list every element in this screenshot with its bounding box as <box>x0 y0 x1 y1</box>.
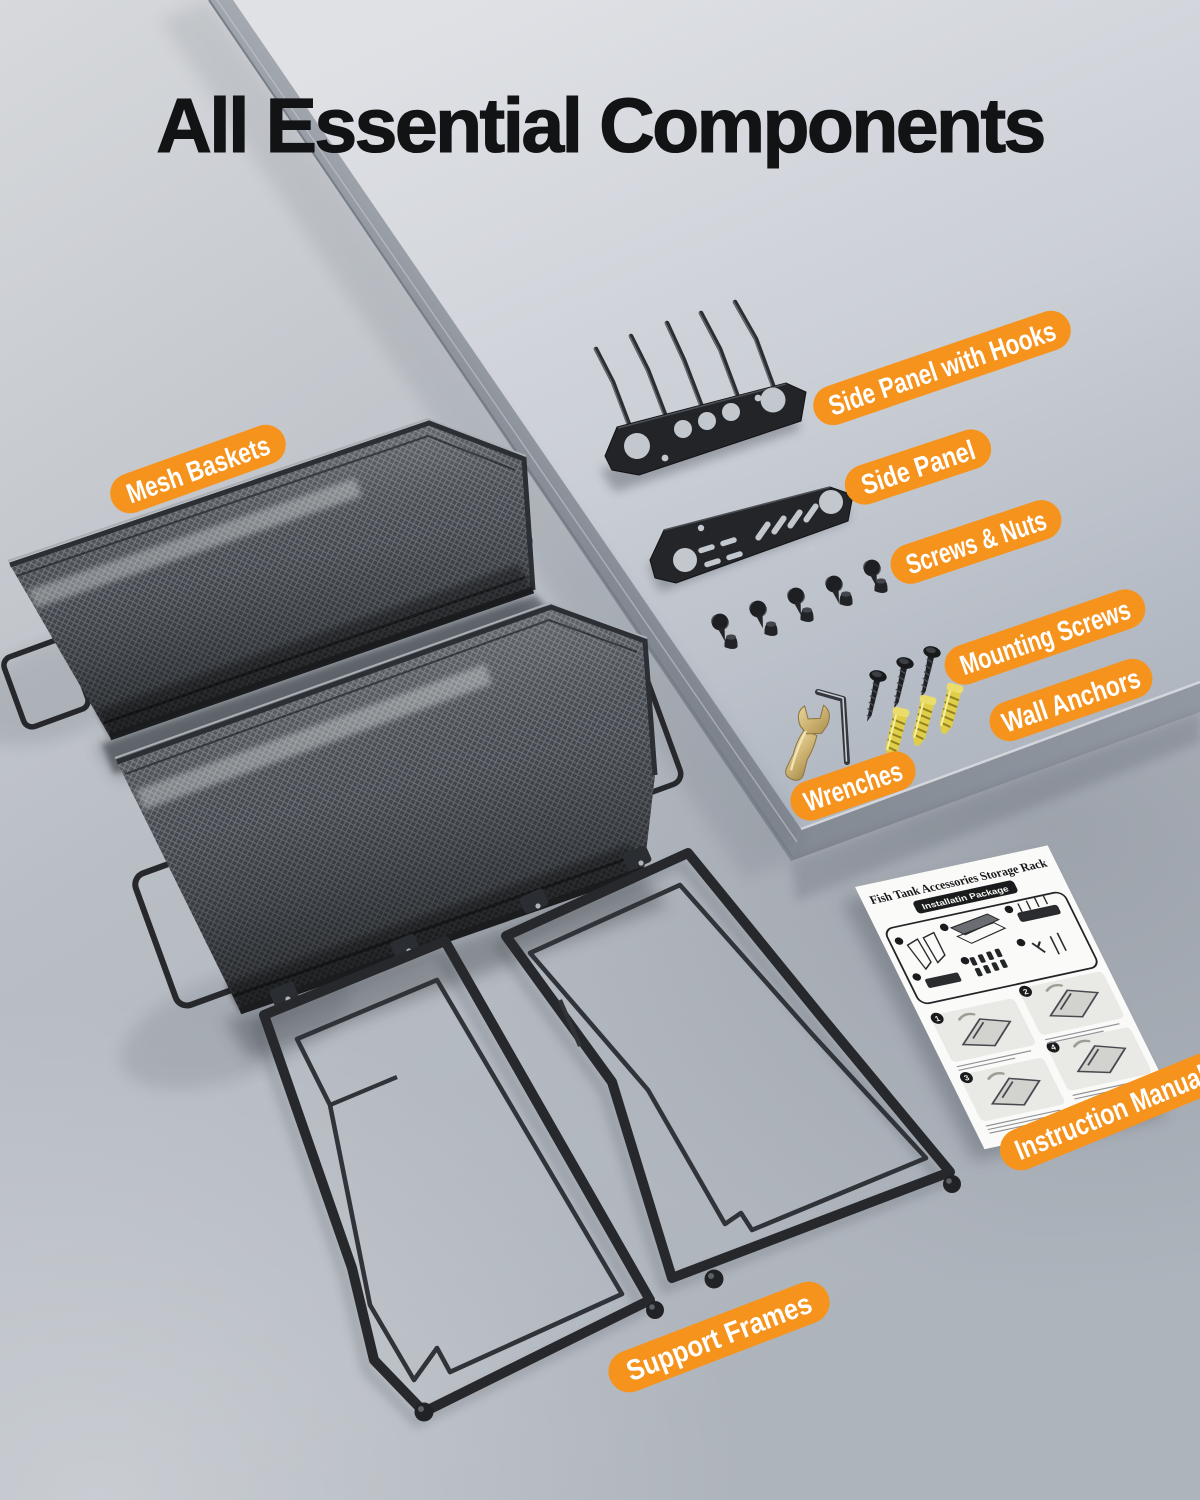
svg-text:All Essential Components: All Essential Components <box>156 83 1043 169</box>
